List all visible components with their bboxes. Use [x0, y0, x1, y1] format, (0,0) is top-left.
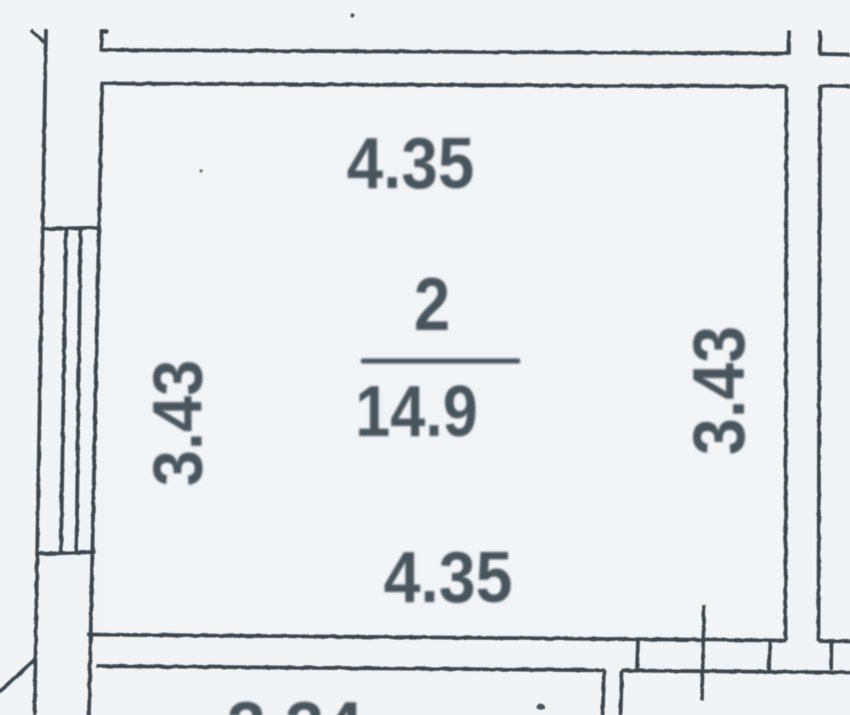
svg-text:4.35: 4.35	[347, 123, 475, 204]
svg-text:14.9: 14.9	[355, 372, 478, 452]
svg-text:3.43: 3.43	[139, 360, 217, 487]
svg-text:3.43: 3.43	[678, 326, 760, 455]
svg-text:4.35: 4.35	[384, 536, 513, 617]
svg-text:2: 2	[414, 262, 450, 346]
svg-text:3.34: 3.34	[227, 688, 363, 715]
